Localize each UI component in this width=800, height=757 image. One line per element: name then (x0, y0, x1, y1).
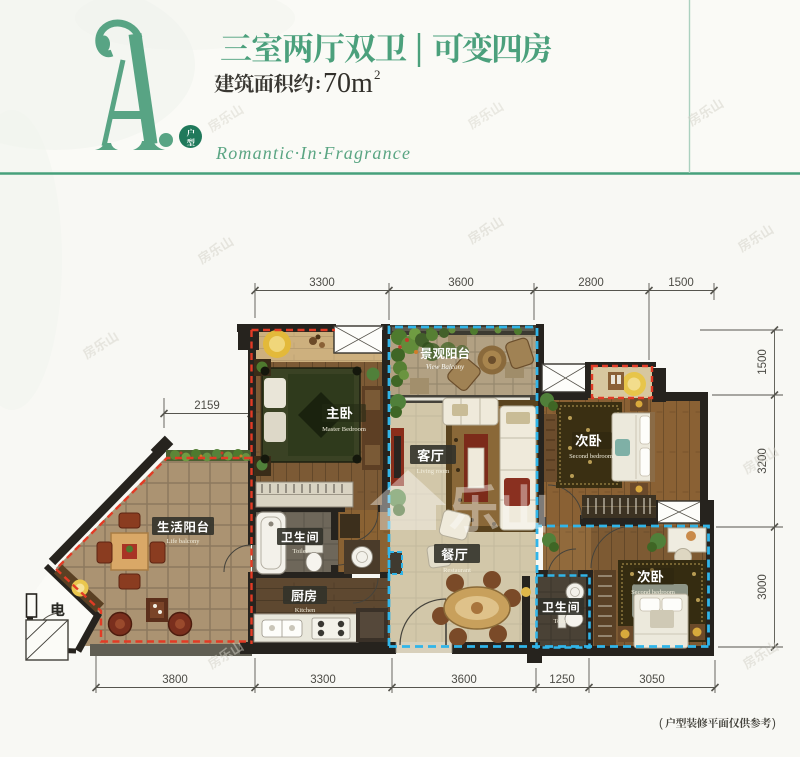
svg-text:3300: 3300 (310, 674, 336, 686)
svg-text:Life balcony: Life balcony (166, 538, 200, 545)
svg-text:2800: 2800 (578, 277, 604, 289)
svg-text:3300: 3300 (309, 277, 335, 289)
svg-text:Master Bedroom: Master Bedroom (322, 426, 366, 433)
svg-text:View Balcony: View Balcony (426, 363, 465, 371)
svg-text::: : (315, 73, 321, 94)
svg-text:Second bedroom: Second bedroom (631, 589, 675, 596)
svg-text:Second bedroom: Second bedroom (569, 453, 613, 460)
svg-text:3600: 3600 (448, 277, 474, 289)
svg-text:1500: 1500 (668, 277, 694, 289)
svg-text:Toilet: Toilet (292, 548, 307, 555)
svg-text:Romantic·In·Fragrance: Romantic·In·Fragrance (215, 143, 411, 163)
svg-text:Restaurant: Restaurant (443, 567, 471, 574)
svg-text:1250: 1250 (549, 674, 575, 686)
svg-text:3050: 3050 (639, 674, 665, 686)
svg-text:3800: 3800 (162, 674, 188, 686)
svg-text:Kitchen: Kitchen (295, 607, 316, 614)
svg-text:1500: 1500 (757, 349, 769, 375)
svg-text:2159: 2159 (194, 400, 220, 412)
svg-text:3600: 3600 (451, 674, 477, 686)
svg-text:(: ( (659, 718, 663, 730)
svg-text:3000: 3000 (757, 574, 769, 600)
svg-text:Toilet: Toilet (553, 618, 568, 625)
svg-text:70m: 70m (323, 68, 373, 99)
svg-text:Living room: Living room (417, 468, 450, 475)
svg-text:): ) (772, 718, 776, 730)
svg-text:2: 2 (374, 67, 381, 82)
